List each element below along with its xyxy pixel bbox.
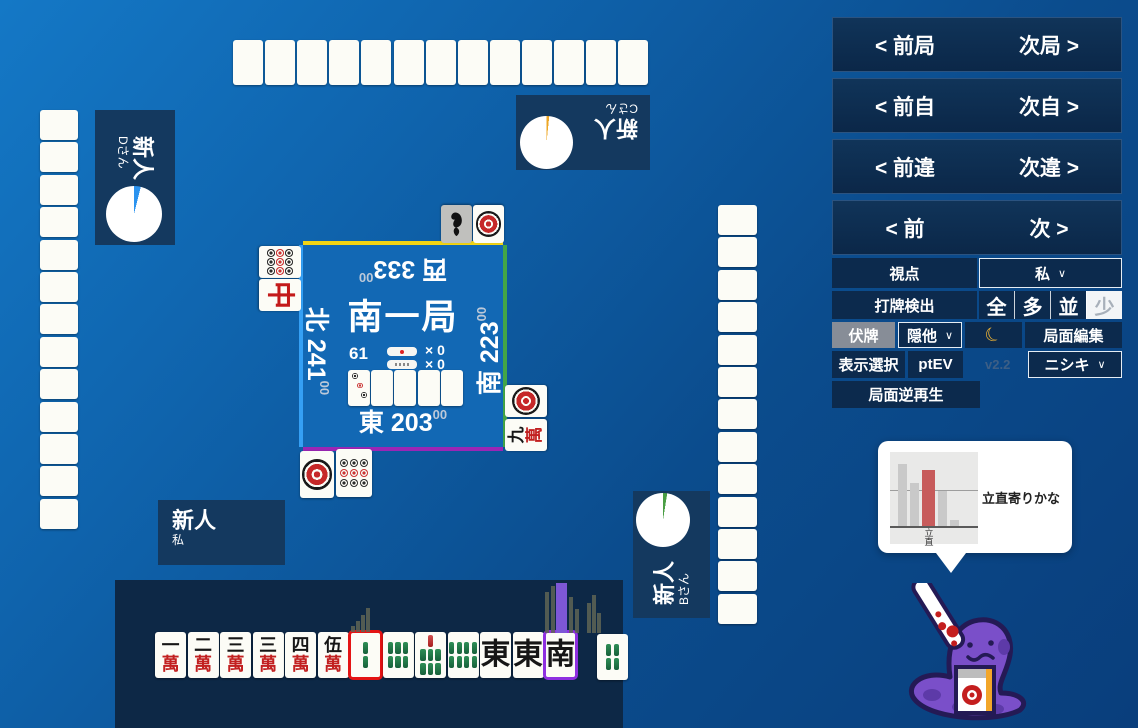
tile-suit: 萬 [259,655,277,674]
bamboo-stick [449,656,454,668]
nav-prev-button-2[interactable]: < 前違 [833,140,977,193]
circle-glyph [357,383,363,389]
chart-bar-label: 立 直 [924,529,934,547]
tile-back [718,335,757,365]
chart-baseline [890,526,978,528]
detect-bar [575,609,579,633]
dahai-detect-segment: 全多並少 [979,291,1122,319]
tile-back [40,110,78,140]
detect-bar [366,608,370,632]
advice-tooltip: 立 直 立直寄りかな [878,441,1072,553]
tile-back [418,370,440,406]
hand-tile-S[interactable]: 南 [545,632,576,678]
hand-tile-E[interactable]: 東 [513,632,544,678]
bamboo-stick [428,635,433,647]
tile-suit: 萬 [526,427,544,444]
chart-bar [910,483,919,526]
nav-prev-button-0[interactable]: < 前局 [833,18,977,71]
player-name-top: 新人 Cさん [594,101,638,141]
hand-tile-2s[interactable] [350,632,381,678]
tile-back [718,270,757,300]
circle-glyph [350,469,358,477]
board-edit-button[interactable]: 局面編集 [1025,322,1122,348]
chevron-down-icon: ∨ [1058,267,1066,280]
bamboo-stick [472,642,477,654]
hand-tile-6s[interactable] [383,632,414,678]
tile-1s [441,205,472,243]
viewpoint-button[interactable]: 視点 [832,258,977,288]
tile-suit: 萬 [194,655,212,674]
pin-row [339,458,369,468]
engine-value: ニシキ [1044,354,1089,375]
circle-glyph [285,249,292,256]
sou-row [362,641,369,655]
tile-back [554,40,584,85]
bamboo-stick [464,656,469,668]
bamboo-stick [403,656,408,668]
sou-row [448,641,478,655]
tile-back [586,40,616,85]
version-label: v2.2 [985,357,1010,372]
hand-tile-5m[interactable]: 伍萬 [318,632,349,678]
honor-glyph: 東 [481,640,511,670]
dahai-option-少[interactable]: 少 [1086,291,1122,319]
tile-suit: 萬 [162,655,180,674]
circle-glyph [267,249,274,256]
pin-row [339,468,369,478]
detect-bar [361,615,365,632]
moon-icon: ☾ [981,321,1006,349]
tile-back [718,464,757,494]
tile-number: 四 [292,636,310,655]
bamboo-stick [403,642,408,654]
circle-glyph [360,459,368,467]
bamboo-stick [428,649,433,661]
circle-glyph [285,258,292,265]
circle-glyph [352,373,358,379]
pin-row [267,249,276,276]
riichi-stick-icon [387,347,417,356]
tile-back [40,240,78,270]
viewpoint-select[interactable]: 私 ∨ [979,258,1122,288]
tile-back [394,40,424,85]
bird-icon [447,211,466,238]
circle-glyph [340,469,348,477]
player-name-right: 新人 Bさん [652,561,692,605]
tile-suit: 萬 [292,655,310,674]
sou-row [605,643,620,657]
nav-next-button-0[interactable]: 次局 > [977,18,1121,71]
bamboo-stick [606,644,611,656]
nav-row-mistake: < 前違次違 > [832,139,1122,194]
tile-back [718,237,757,267]
advice-text: 立直寄りかな [982,488,1068,507]
detect-bar [587,603,591,633]
sou-row [419,648,441,662]
tile-9p [336,449,372,497]
seat-border-bottom [303,447,503,451]
tooltip-tail [936,553,966,573]
tile-C: 中 [259,279,301,311]
night-mode-button[interactable]: ☾ [965,322,1022,348]
ptev-button[interactable]: ptEV [908,351,963,378]
player-box-top: 新人 Cさん [516,95,650,170]
tile-number: 伍 [324,636,342,655]
bamboo-stick [457,642,462,654]
honor-glyph: 中 [266,281,294,309]
tile-back [40,337,78,367]
hand-tile-8s[interactable] [448,632,479,678]
honor-glyph: 南 [546,640,576,670]
tile-back [718,367,757,397]
tile-back [40,434,78,464]
bamboo-stick [464,642,469,654]
nav-row-step: < 前次 > [832,200,1122,255]
tile-back [426,40,456,85]
detect-bar [545,592,549,633]
tile-back [618,40,648,85]
circle-glyph [512,387,541,416]
tile-number: 二 [194,636,212,655]
advice-bar-chart: 立 直 [890,452,978,544]
dahai-detect-button[interactable]: 打牌検出 [832,291,977,319]
nav-next-button-2[interactable]: 次違 > [977,140,1121,193]
tile-back [265,40,295,85]
bamboo-stick [388,642,393,654]
tile-suit: 萬 [324,655,342,674]
hand-tile-1m[interactable]: 一萬 [155,632,186,678]
tile-back [40,304,78,334]
sou-row [362,655,369,669]
bamboo-stick [395,656,400,668]
player-box-left: 新人 Dさん [95,110,175,245]
tile-back [297,40,327,85]
round-name: 南一局 [303,289,503,340]
viewpoint-value: 私 [1035,263,1050,284]
bamboo-stick [435,649,440,661]
circle-glyph [276,249,283,256]
hand-tile-4m[interactable]: 四萬 [285,632,316,678]
nav-next-button-3[interactable]: 次 > [977,201,1121,254]
fusehai-button[interactable]: 伏牌 [832,322,895,348]
tile-back [371,370,393,406]
tile-9m: 九萬 [505,419,547,451]
honor-glyph: 東 [513,640,543,670]
nav-prev-button-3[interactable]: < 前 [833,201,977,254]
tile-back [441,370,463,406]
bamboo-stick [614,644,619,656]
dora-indicator-tile [348,370,370,406]
circle-glyph [276,267,283,274]
tile-back [718,205,757,235]
tile-back [40,466,78,496]
tile-back [40,369,78,399]
circle-glyph [267,267,274,274]
tile-back [329,40,359,85]
nav-prev-button-1[interactable]: < 前自 [833,79,977,132]
drawn-tile-4s[interactable] [597,634,628,680]
circle-glyph [361,392,367,398]
tile-1p [300,451,334,498]
reverse-replay-button[interactable]: 局面逆再生 [832,381,980,408]
display-select-button[interactable]: 表示選択 [832,351,905,378]
chart-bar [898,464,907,526]
chart-bar [950,520,959,526]
bamboo-stick [606,658,611,670]
fusehai-select[interactable]: 隠他 ∨ [898,322,962,348]
circle-glyph [285,267,292,274]
tile-back [40,499,78,529]
circle-glyph [350,459,358,467]
player-name-bottom: 新人 私 [172,508,285,548]
honba-stick-icon [387,360,417,369]
timer-top [520,116,573,169]
circle-glyph [267,258,274,265]
detect-bar [592,595,596,633]
snake-mascot [898,583,1048,725]
tile-back [718,497,757,527]
nav-row-kyoku: < 前局次局 > [832,17,1122,72]
circle-glyph [340,459,348,467]
bamboo-stick [457,656,462,668]
tile-back [40,142,78,172]
bamboo-stick [472,656,477,668]
hand-tile-3m[interactable]: 三萬 [253,632,284,678]
circle-glyph [360,479,368,487]
timer-left [106,186,162,242]
circle-glyph [276,258,283,265]
engine-select[interactable]: ニシキ ∨ [1028,351,1122,378]
tile-suit: 萬 [227,655,245,674]
best-move-bar [556,583,567,633]
bamboo-stick [435,663,440,675]
timer-right [636,493,690,547]
detect-bar [551,586,555,633]
tile-back [490,40,520,85]
circle-glyph [340,479,348,487]
player-name-left: 新人 Dさん [115,136,155,180]
sou-row [605,657,620,671]
hand-tile-7s[interactable] [415,632,446,678]
wall-tile-count: 61 [349,344,368,364]
tile-back [40,402,78,432]
dahai-option-多[interactable]: 多 [1014,291,1050,319]
tile-back [718,302,757,332]
tile-number: 三 [259,636,277,655]
sou-row [387,641,409,655]
mahjong-review-app: 西 33300 北 24100 南 22300 東 20300 南一局 61 ×… [0,0,1138,728]
chevron-down-icon: ∨ [1097,358,1105,371]
circle-glyph [360,469,368,477]
bamboo-stick [363,642,368,654]
chart-bar-立直 [922,470,935,526]
tile-back [718,529,757,559]
fusehai-value: 隠他 [907,325,937,346]
bamboo-stick [614,658,619,670]
bamboo-stick [420,649,425,661]
chart-bar [938,491,947,526]
circle-glyph [302,459,333,490]
tile-back [458,40,488,85]
bamboo-stick [420,663,425,675]
sou-row [419,662,441,676]
nav-row-self: < 前自次自 > [832,78,1122,133]
sou-row [448,655,478,669]
tile-back [522,40,552,85]
hand-tile-2m[interactable]: 二萬 [188,632,219,678]
detect-bar [569,597,573,633]
tile-9p [259,246,301,278]
tile-number: 三 [227,636,245,655]
tile-back [718,594,757,624]
detect-bar [351,626,355,632]
bamboo-stick [395,642,400,654]
circle-glyph [350,479,358,487]
tile-back [718,561,757,591]
chevron-down-icon: ∨ [945,329,953,342]
detect-bar [356,621,360,632]
player-box-bottom: 新人 私 [158,500,285,565]
bamboo-stick [449,642,454,654]
dahai-option-並[interactable]: 並 [1050,291,1086,319]
tile-back [394,370,416,406]
bamboo-stick [363,656,368,668]
pin-row [339,478,369,488]
tile-back [718,432,757,462]
tile-number: 一 [162,636,180,655]
tile-1p [505,385,547,417]
tile-back [361,40,391,85]
score-east: 東 20300 [303,403,503,439]
bamboo-stick [428,663,433,675]
sou-row [427,634,434,648]
pin-diagonal [348,370,370,406]
tile-back [40,207,78,237]
hand-tile-3m[interactable]: 三萬 [220,632,251,678]
pin-row [284,249,293,276]
center-board: 西 33300 北 24100 南 22300 東 20300 南一局 61 ×… [303,245,503,447]
circle-glyph [476,211,501,236]
pin-row [276,249,285,276]
tile-back [40,175,78,205]
player-box-right: 新人 Bさん [633,491,710,618]
tile-back [233,40,263,85]
dahai-option-全[interactable]: 全 [979,291,1014,319]
tile-back [40,272,78,302]
tile-number: 九 [508,427,526,444]
bamboo-stick [388,656,393,668]
detect-bar [597,613,601,633]
nav-next-button-1[interactable]: 次自 > [977,79,1121,132]
hand-tile-E[interactable]: 東 [480,632,511,678]
tile-1p [473,205,504,243]
sou-row [387,655,409,669]
tile-back [718,399,757,429]
